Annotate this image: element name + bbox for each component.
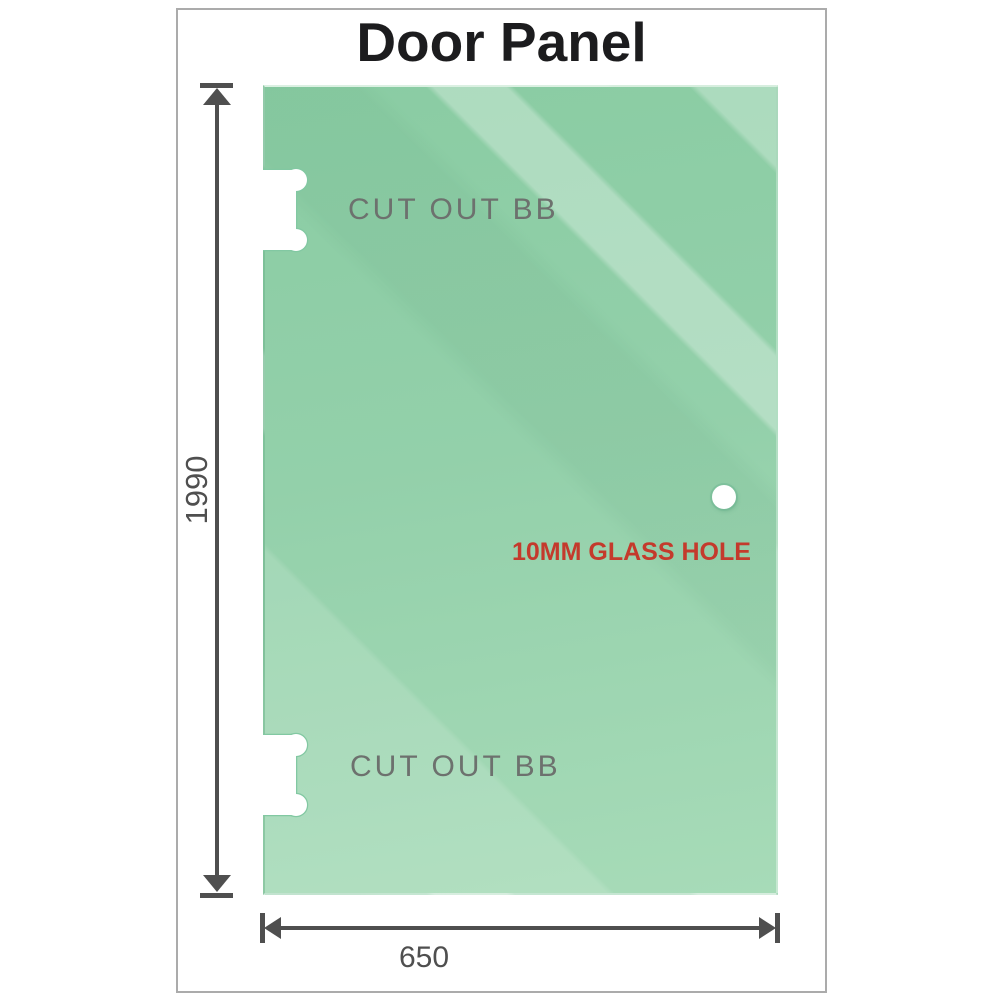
arrow-right-icon <box>759 917 776 939</box>
width-dimension-value: 650 <box>394 941 454 975</box>
arrow-left-icon <box>264 917 281 939</box>
diagram-canvas: Door Panel CUT OUT BB CUT OUT BB 10MM GL… <box>0 0 1000 1000</box>
width-dimension-line <box>272 926 768 930</box>
width-dimension: 650 <box>0 0 1000 1000</box>
